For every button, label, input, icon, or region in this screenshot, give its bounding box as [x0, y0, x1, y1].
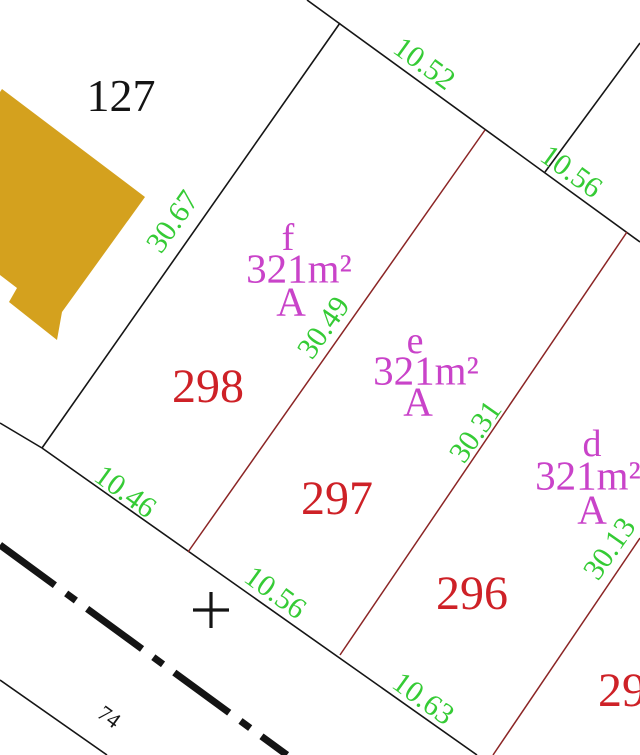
map-canvas[interactable]: 127 298 297 296 29 f 321m² A e 321m² A d…	[0, 0, 640, 755]
parcel-number-298: 298	[172, 363, 244, 411]
lot-division-line-d-next	[493, 538, 640, 755]
building-footprint	[0, 89, 145, 340]
lot-zone-e: A	[403, 382, 433, 423]
survey-cross-marker	[193, 592, 229, 628]
parcel-number-127: 127	[87, 73, 156, 119]
parcel-number-296: 296	[436, 570, 508, 618]
lot-zone-d: A	[577, 490, 607, 531]
parcel-number-297: 297	[301, 475, 373, 523]
boundary-line-corner	[0, 423, 42, 448]
boundary-line-top	[307, 0, 640, 242]
road-edge-line	[0, 680, 107, 755]
parcel-number-29-partial: 29	[598, 667, 640, 715]
lot-zone-f: A	[276, 282, 306, 323]
